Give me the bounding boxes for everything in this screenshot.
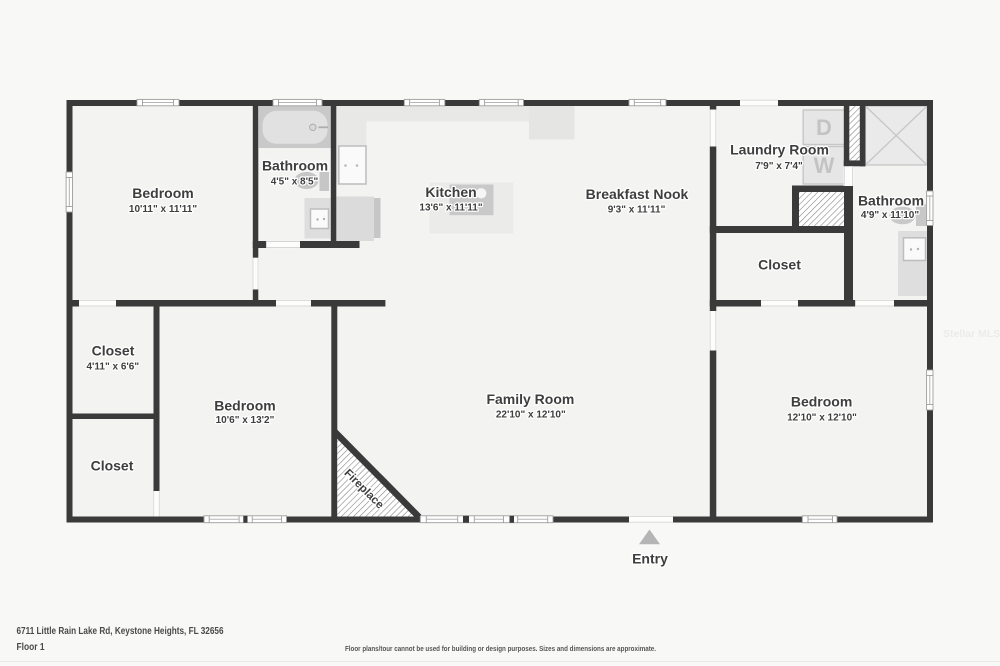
svg-text:D: D — [816, 115, 832, 140]
svg-text:Stellar MLS: Stellar MLS — [943, 328, 1000, 340]
svg-text:Entry: Entry — [632, 551, 668, 567]
svg-text:Floor plans/tour cannot be use: Floor plans/tour cannot be used for buil… — [345, 646, 656, 653]
svg-text:Kitchen: Kitchen — [425, 184, 476, 200]
svg-text:9'3" x 11'11": 9'3" x 11'11" — [608, 204, 666, 215]
svg-text:4'9" x 11'10": 4'9" x 11'10" — [861, 210, 919, 221]
svg-text:13'6" x 11'11": 13'6" x 11'11" — [419, 203, 482, 214]
svg-text:4'11" x 6'6": 4'11" x 6'6" — [86, 362, 139, 373]
svg-text:Closet: Closet — [758, 257, 801, 273]
svg-text:Closet: Closet — [91, 458, 134, 474]
svg-text:Bedroom: Bedroom — [791, 394, 852, 410]
svg-text:Breakfast Nook: Breakfast Nook — [586, 186, 689, 202]
svg-text:22'10" x 12'10": 22'10" x 12'10" — [496, 409, 566, 420]
svg-text:Bedroom: Bedroom — [132, 185, 193, 201]
svg-text:Bathroom: Bathroom — [858, 193, 924, 209]
svg-text:Bathroom: Bathroom — [262, 157, 328, 173]
svg-text:10'11" x 11'11": 10'11" x 11'11" — [129, 204, 197, 215]
svg-text:Family Room: Family Room — [486, 391, 574, 407]
svg-text:10'6" x 13'2": 10'6" x 13'2" — [216, 415, 275, 426]
svg-text:Floor 1: Floor 1 — [17, 642, 45, 653]
svg-text:Laundry Room: Laundry Room — [730, 142, 829, 158]
svg-text:7'9" x 7'4": 7'9" x 7'4" — [755, 161, 803, 172]
svg-text:6711 Little Rain Lake Rd, Keys: 6711 Little Rain Lake Rd, Keystone Heigh… — [17, 626, 224, 637]
svg-text:4'5" x 8'5": 4'5" x 8'5" — [271, 177, 319, 188]
svg-text:Bedroom: Bedroom — [214, 398, 275, 414]
svg-text:12'10" x 12'10": 12'10" x 12'10" — [787, 413, 857, 424]
svg-text:Closet: Closet — [92, 343, 135, 359]
